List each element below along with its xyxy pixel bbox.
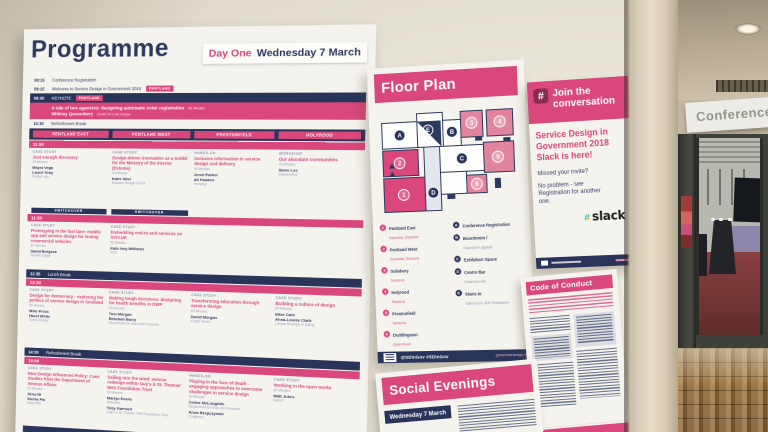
legend-facilities-column: A Conference Registration B Boardroom /O…: [453, 219, 528, 351]
speaker-org: Independent: [278, 173, 360, 178]
session-title: Prototyping in the fast lane: mobile app…: [31, 228, 106, 245]
time-label: 08:15: [34, 78, 47, 83]
date-label: Wednesday 7 March: [257, 46, 361, 59]
coc-gray-panel: [531, 333, 573, 361]
pillar: [624, 0, 678, 432]
session-type: HANDS-ON: [194, 152, 273, 156]
tv-screen: [733, 178, 763, 223]
room-badge: PENTLAND: [76, 95, 103, 101]
speaker-org: GDS: [110, 251, 187, 257]
session-card: HANDS-ON Playing in the face of death - …: [188, 374, 269, 432]
facility-letter-dot: B: [453, 234, 460, 241]
facility-letter-dot: D: [455, 268, 462, 275]
social-date-label: Wednesday 7 March: [384, 405, 451, 424]
slack-wordmark: slack: [592, 208, 626, 224]
coc-intro-text: [528, 292, 613, 314]
legend-item: 6 DuddingstonQuiet Room: [384, 329, 453, 348]
facility-letter-dot: A: [453, 222, 460, 229]
speaker-org: Humanly: [194, 182, 273, 187]
room-number-dot: 3: [381, 267, 388, 274]
footer-logo: [541, 260, 548, 265]
empty-cell: [276, 229, 359, 279]
conference-sign: Conference: [685, 97, 768, 133]
session-title: Inclusive information in service design …: [194, 156, 274, 167]
ceiling: [678, 0, 768, 100]
empty-cell: [192, 227, 272, 276]
track-pentland-east: PENTLAND EAST: [33, 130, 109, 138]
door-frame: [678, 134, 696, 348]
room-name: Prestonfield: [392, 311, 415, 316]
schedule-row-keynote: 09:30 KEYNOTE PENTLAND: [30, 92, 366, 102]
session-card: CASE STUDY Sailing into the wind: servic…: [106, 370, 184, 432]
roller-shutter: [699, 138, 760, 164]
room-number-dot: 1: [380, 224, 387, 231]
sdingov-logo: [383, 353, 396, 362]
session-title: Our abundant communities: [279, 157, 361, 163]
legend-item: C Exhibition Space: [454, 253, 524, 264]
glass-panel: [696, 138, 763, 335]
join-title: Join the conversation: [552, 83, 623, 110]
hashtag-icon: #: [533, 88, 549, 104]
legend-item: 1 Pentland EastKeynotes, Sessions: [380, 222, 449, 242]
glass-doors: [678, 134, 768, 348]
session-card: WORKSHOP Our abundant communities 90 Min…: [278, 152, 361, 212]
facility-sub: Organiser Luggage: [463, 246, 492, 250]
time-label: 09:15: [34, 86, 47, 91]
room-sub: Sessions: [392, 322, 406, 326]
session-card: CASE STUDY Prototyping in the fast lane:…: [30, 224, 106, 272]
programme-title: Programme: [31, 33, 169, 63]
room-sub: Sessions: [391, 279, 405, 283]
cup: [719, 218, 723, 221]
schedule-row-break1: 10:30 Refreshment Break: [29, 119, 365, 128]
session-card: CASE STUDY Working in the open works 60 …: [272, 378, 355, 432]
session-card: CASE STUDY Design-driven innovation as a…: [111, 151, 189, 210]
room-name: Pentland West: [390, 247, 418, 252]
row-label: Lunch Break: [48, 272, 71, 278]
session-card: CASE STUDY Making tough decisions: desig…: [108, 291, 186, 354]
session-card: CASE STUDY Embedding end-to-end services…: [110, 225, 188, 274]
track-header-row: PENTLAND EAST PENTLAND WEST PRESTONFIELD…: [29, 128, 365, 141]
facility-name: Centro Bar: [464, 270, 485, 275]
facility-sub: Refreshments: [465, 280, 486, 284]
slack-hash-icon: #: [584, 212, 590, 224]
track-pentland-west: PENTLAND WEST: [112, 131, 190, 139]
conference-url: govservicedesign.net: [496, 353, 529, 357]
room-sub: Keynotes, Sessions: [389, 236, 418, 241]
session-card: CASE STUDY Building a culture of design …: [274, 296, 357, 361]
session-card: CASE STUDY Transforming education throug…: [190, 294, 271, 358]
track-prestonfield: PRESTONFIELD: [194, 131, 274, 139]
time-label: 14:30: [28, 349, 41, 354]
time-label: 12:35: [30, 271, 43, 276]
room-number-dot: 4: [382, 288, 389, 295]
session-card: CASE STUDY Design for democracy - explor…: [28, 288, 104, 350]
session-type: CASE STUDY: [112, 151, 189, 155]
legend-item: 3 SalisburySessions: [381, 265, 450, 285]
session-card: CASE STUDY How Design Influences Policy:…: [27, 366, 103, 429]
room-sub: Sessions: [392, 300, 406, 304]
invite-answer: No problem - see Registration for anothe…: [538, 178, 612, 205]
room-name: Duddingston: [393, 333, 418, 338]
slack-logo: # slack: [539, 208, 629, 226]
coc-column-right: [573, 311, 621, 406]
slack-poster-body: Service Design in Government 2018 Slack …: [529, 118, 636, 226]
session-duration: 90 Minutes: [194, 167, 273, 171]
row-label: Refreshment Break: [46, 350, 81, 356]
legend-rooms-column: 1 Pentland EastKeynotes, Sessions 2 Pent…: [380, 222, 453, 352]
footer-text-line: [551, 261, 581, 264]
slack-headline: Service Design in Government 2018 Slack …: [535, 125, 626, 163]
session-title: Just enough discovery: [32, 155, 107, 161]
session-type: CASE STUDY: [33, 150, 108, 154]
room-beyond: [699, 164, 760, 335]
track-holyrood: HOLYROOD: [278, 131, 361, 139]
facility-name: Stairs to: [465, 292, 482, 297]
row-label: KEYNOTE: [52, 95, 72, 100]
facility-name: Boardroom /: [463, 236, 488, 241]
speaker-org: Estonian Design Centre: [112, 182, 189, 187]
room-sub: Keynotes, Sessions: [390, 257, 419, 261]
floor-plan-title: Floor Plan: [374, 66, 518, 103]
keynote-duration: 60 Minutes: [188, 107, 205, 111]
session-row-1100: CASE STUDY Just enough discovery 45 Minu…: [28, 148, 365, 213]
time-label: 09:30: [34, 96, 47, 101]
keynote-title: A tale of two agencies: designing automa…: [51, 105, 184, 110]
session-card: HANDS-ON Inclusive information in servic…: [193, 152, 274, 211]
map-marker-E: E: [426, 128, 430, 134]
legend-item: B Boardroom /Organiser Luggage: [453, 231, 524, 251]
legend-item: 4 HolyroodSessions: [382, 286, 451, 306]
keynote-speaker: Whitney Quesenbery: [51, 111, 93, 116]
session-title: Embedding end-to-end services on GOV.UK: [110, 230, 187, 242]
ceiling-vent: [716, 80, 768, 92]
room-sub: Quiet Room: [393, 343, 411, 347]
floor-plan-map: A B C D E 1 2: [375, 100, 522, 221]
room-name: Salisbury: [391, 269, 409, 274]
session-duration: 45 Minutes: [32, 161, 107, 165]
speaker-org: Deloitte Digital: [30, 254, 105, 260]
legend-item: 2 Pentland WestKeynotes, Sessions: [380, 243, 449, 263]
cup: [728, 218, 732, 221]
room-number-dot: 6: [384, 331, 391, 338]
row-label: Refreshment Break: [51, 121, 86, 126]
interior-scene: Conference: [678, 0, 768, 432]
photo-of-conference-posters: Programme Day OneWednesday 7 March 08:15…: [0, 0, 768, 432]
legend-item: 5 PrestonfieldSessions: [383, 308, 452, 327]
coc-text-block: [530, 315, 571, 333]
row-label: Welcome to Service Design in Government …: [52, 86, 141, 91]
day-badge: Day One: [209, 47, 252, 59]
conference-sign-text: Conference: [696, 104, 768, 124]
social-evenings-poster: Social Evenings Wednesday 7 March: [375, 359, 544, 432]
coc-gray-panel: [573, 311, 616, 347]
facility-name: Exhibition Space: [464, 257, 497, 263]
social-quote-text: [458, 399, 537, 432]
facility-sub: Salisbury & UNO Restaurant: [465, 301, 509, 306]
session-duration: 45 Minutes: [112, 172, 189, 176]
catering-table: [696, 234, 707, 276]
room-name: Pentland East: [389, 226, 416, 231]
coc-text-block: [576, 348, 620, 399]
facility-letter-dot: E: [455, 290, 462, 297]
room-name: Holyrood: [391, 290, 409, 295]
keynote-org: Center for Civic Design: [97, 113, 131, 116]
time-label: 10:30: [33, 121, 46, 126]
legend-item: D Centro BarRefreshments: [455, 266, 526, 286]
room-number-dot: 5: [383, 310, 390, 317]
invite-question: Missed your invite?: [537, 165, 627, 177]
facility-letter-dot: C: [454, 256, 461, 263]
slack-poster-footer: [536, 254, 638, 269]
slack-poster: # Join the conversation Service Design i…: [527, 76, 638, 269]
day-date-card: Day OneWednesday 7 March: [203, 42, 368, 64]
coc-columns: [530, 311, 622, 409]
session-row-1150: CASE STUDY Prototyping in the fast lane:…: [26, 221, 363, 279]
door-poster: [681, 196, 692, 248]
programme-poster: Programme Day OneWednesday 7 March 08:15…: [15, 24, 376, 432]
session-card: CASE STUDY Just enough discovery 45 Minu…: [31, 150, 107, 208]
cup: [711, 218, 715, 221]
room-badge: PENTLAND: [146, 85, 174, 91]
ceiling-light: [732, 22, 764, 36]
floor-plan-poster: Floor Plan: [367, 59, 535, 363]
hashtags: @SDinGov #SDinGov: [401, 354, 449, 360]
session-title: Design-driven innovation as a toolkit fo…: [112, 155, 189, 171]
floor-plan-legend: 1 Pentland EastKeynotes, Sessions 2 Pent…: [380, 219, 528, 352]
keynote-block: A tale of two agencies: designing automa…: [30, 102, 366, 120]
floor-plan-svg: A B C D E 1 2: [375, 100, 522, 219]
legend-item: A Conference Registration: [453, 219, 523, 231]
speaker-org: Pivotal Labs: [32, 175, 107, 180]
session-type: WORKSHOP: [279, 152, 361, 156]
legend-item: E Stairs toSalisbury & UNO Restaurant: [455, 288, 526, 308]
wood-floor: [678, 348, 768, 432]
facility-name: Conference Registration: [462, 222, 510, 228]
slack-poster-header: # Join the conversation: [527, 76, 631, 124]
room-number-dot: 2: [380, 246, 387, 253]
session-duration: 90 Minutes: [279, 163, 361, 167]
row-label: Conference Registration: [52, 77, 96, 82]
